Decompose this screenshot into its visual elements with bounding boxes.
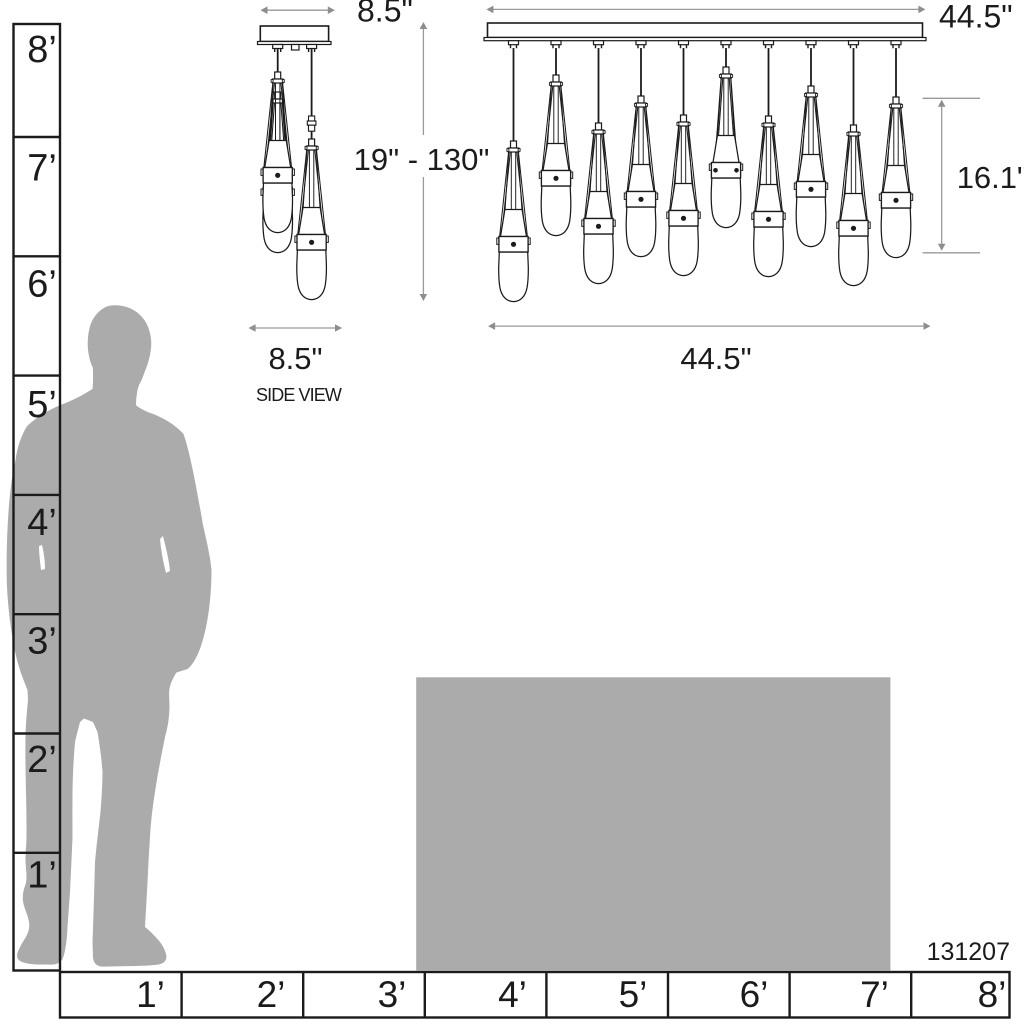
svg-text:1’: 1’ — [136, 974, 165, 1015]
svg-text:1’: 1’ — [27, 855, 57, 897]
svg-text:7’: 7’ — [27, 148, 57, 190]
svg-text:7’: 7’ — [860, 974, 889, 1015]
svg-text:5’: 5’ — [619, 974, 648, 1015]
svg-text:4’: 4’ — [498, 974, 527, 1015]
svg-text:2’: 2’ — [27, 739, 57, 781]
svg-text:8.5": 8.5" — [357, 0, 413, 29]
svg-text:6’: 6’ — [27, 264, 57, 306]
svg-text:6’: 6’ — [740, 974, 769, 1015]
svg-text:8’: 8’ — [27, 29, 57, 71]
svg-text:8’: 8’ — [978, 974, 1007, 1015]
svg-text:3’: 3’ — [27, 621, 57, 663]
svg-text:4’: 4’ — [27, 502, 57, 544]
svg-text:8.5": 8.5" — [268, 341, 322, 376]
svg-text:5’: 5’ — [27, 384, 57, 426]
svg-text:131207: 131207 — [927, 938, 1010, 966]
svg-text:44.5": 44.5" — [680, 341, 751, 376]
svg-text:3’: 3’ — [378, 974, 407, 1015]
svg-text:19" - 130": 19" - 130" — [354, 142, 490, 177]
svg-text:16.1": 16.1" — [957, 160, 1024, 195]
svg-text:2’: 2’ — [257, 974, 286, 1015]
svg-text:44.5": 44.5" — [939, 0, 1013, 35]
svg-text:SIDE VIEW: SIDE VIEW — [256, 385, 342, 405]
